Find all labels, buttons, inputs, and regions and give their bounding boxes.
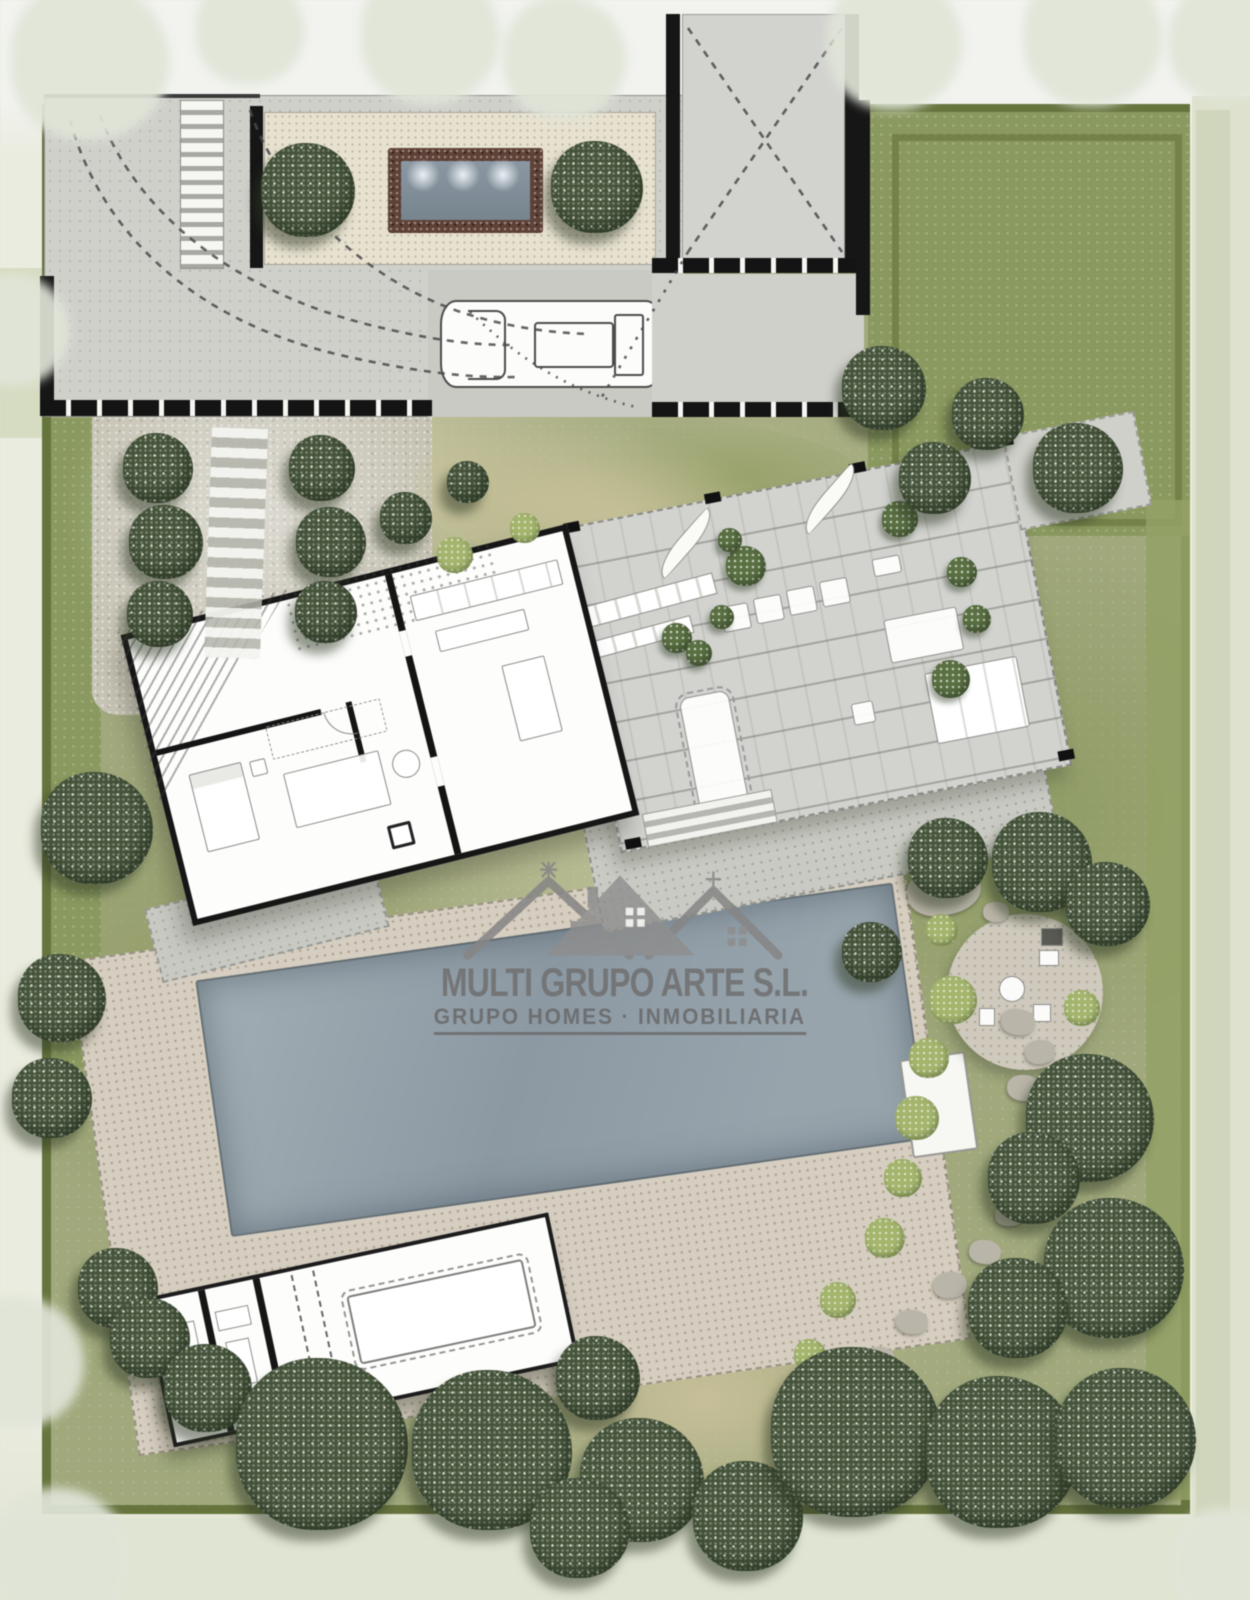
stepping-stone [895,1309,929,1336]
tree-icon [12,1058,92,1138]
pale-tree-icon [503,0,627,120]
pale-tree-icon [0,274,70,386]
pale-tree-icon [0,1488,130,1600]
watermark: MULTI GRUPO ARTE S.L. GRUPO HOMES · INMO… [395,862,845,1035]
pale-tree-icon [827,0,963,110]
bush-icon [895,1096,939,1140]
bush-icon [926,914,958,946]
bush-icon [884,1159,922,1197]
stepping-stone [932,1270,969,1299]
tree-icon [530,1478,630,1578]
tree-icon [129,505,203,579]
tree-icon [447,461,489,503]
tree-icon [261,143,355,237]
landscape-layer [0,0,1250,1600]
tree-icon [296,507,366,577]
tree-icon [41,772,153,884]
tree-icon [556,1336,640,1420]
triple-roofline-houses-icon [455,862,785,962]
tree-icon [295,581,357,643]
tree-icon [1066,862,1150,946]
tree-icon [988,1132,1080,1224]
tree-icon [236,1358,408,1530]
bush-icon [820,1282,856,1318]
tree-icon [123,433,193,503]
stepping-stone [999,1007,1036,1037]
tree-icon [842,346,926,430]
site-plan-rendering: MULTI GRUPO ARTE S.L. GRUPO HOMES · INMO… [0,0,1250,1600]
tree-icon [18,954,106,1042]
bush-icon [929,976,977,1024]
shrub-icon [686,640,712,666]
pale-tree-icon [1168,0,1250,102]
watermark-tagline-text: GRUPO HOMES · INMOBILIARIA [434,1004,806,1035]
bush-icon [1064,990,1100,1026]
pale-tree-icon [0,1296,84,1428]
bush-icon [865,1218,905,1258]
tree-icon [952,378,1024,450]
pale-tree-icon [360,0,500,105]
bush-icon [909,1038,949,1078]
tree-icon [127,581,193,647]
tree-icon [380,492,432,544]
shrub-icon [932,660,970,698]
tree-icon [1033,423,1123,513]
shrub-icon [718,528,742,552]
shrub-icon [710,605,734,629]
pale-tree-icon [1023,0,1163,106]
pale-tree-icon [195,0,305,85]
watermark-company-text: MULTI GRUPO ARTE S.L. [441,962,808,1004]
stepping-stone [983,902,1009,922]
watermark-company: MULTI GRUPO ARTE S.L. [395,962,845,1004]
tree-icon [899,442,971,514]
shrub-icon [947,557,977,587]
tree-icon [968,1258,1068,1358]
tree-icon [926,1376,1078,1528]
pale-tree-icon [1170,1508,1250,1600]
shrub-icon [726,546,766,586]
tree-icon [1056,1368,1196,1508]
watermark-tagline: GRUPO HOMES · INMOBILIARIA [395,1004,845,1035]
shrub-icon [963,605,991,633]
bush-icon [510,513,540,543]
tree-icon [908,818,988,898]
tree-icon [289,435,355,501]
bush-icon [437,537,473,573]
pale-tree-icon [10,0,170,140]
tree-icon [842,922,902,982]
stepping-stone [1024,1038,1056,1065]
tree-icon [771,1347,941,1517]
tree-icon [551,141,643,233]
